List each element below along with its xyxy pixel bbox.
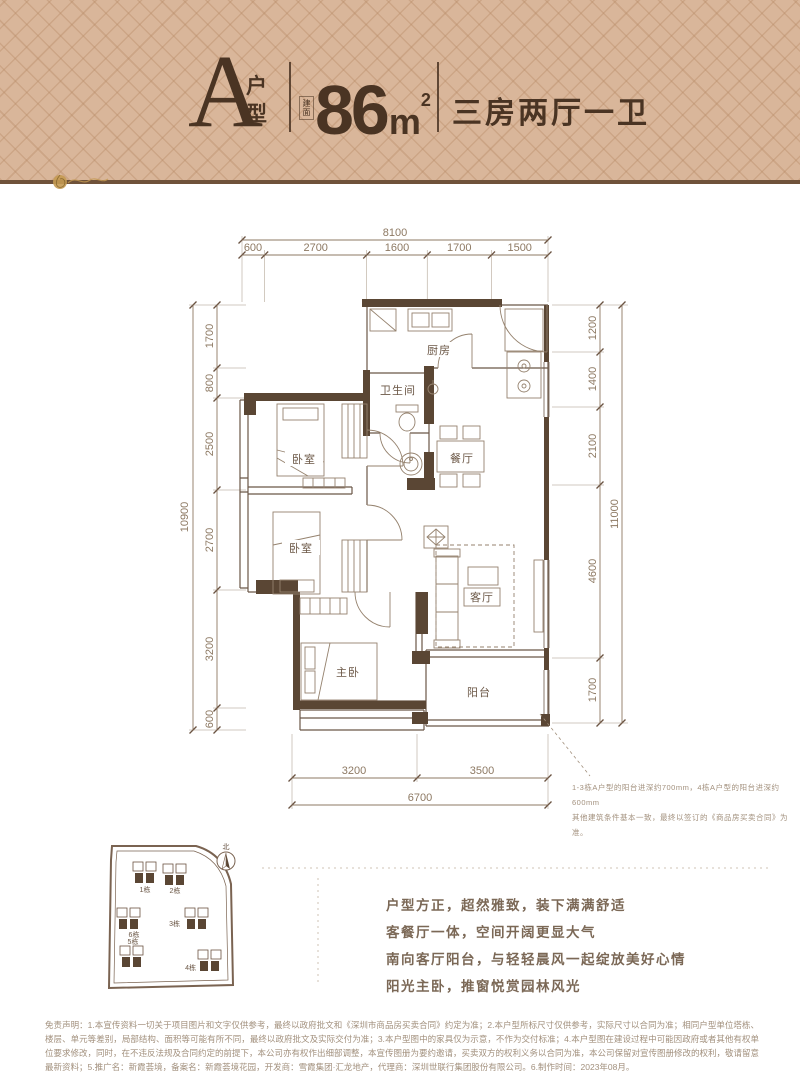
balcony-note-line2: 其他建筑条件基本一致，最终以签订的《商品房买卖合同》为准。 bbox=[572, 810, 800, 840]
dim-right-total: 11000 bbox=[609, 499, 621, 529]
area-value: 86 bbox=[315, 71, 387, 149]
layout-description: 三房两厅一卫 bbox=[452, 88, 650, 132]
north-label: 北 bbox=[223, 843, 230, 851]
furniture bbox=[273, 309, 543, 700]
note-leader-line bbox=[540, 714, 590, 776]
dim-left-seg: 2500 bbox=[204, 432, 216, 456]
north-compass: 北 bbox=[217, 843, 235, 870]
dim-left-seg: 800 bbox=[204, 374, 216, 392]
dim-top-seg: 2700 bbox=[303, 242, 327, 254]
dim-bottom-total: 6700 bbox=[408, 792, 432, 804]
dim-right-seg: 1400 bbox=[587, 367, 599, 391]
selling-point: 阳光主卧，推窗悦赏园林风光 bbox=[386, 973, 686, 1000]
room-bedroom2: 卧室 bbox=[289, 541, 313, 555]
dim-bottom-seg: 3200 bbox=[342, 765, 366, 777]
unit-type-word: 户型 bbox=[246, 72, 269, 128]
building-label: 6栋 bbox=[129, 930, 140, 939]
area-badge-seal: 建面 bbox=[299, 96, 314, 120]
disclaimer-text: 免责声明：1.本宣传资料一切关于项目图片和文字仅供参考，最终以政府批文和《深圳市… bbox=[45, 1018, 759, 1074]
dim-left-seg: 3200 bbox=[204, 637, 216, 661]
building-label: 1栋 bbox=[140, 885, 151, 894]
selling-point: 南向客厅阳台，与轻轻晨风一起绽放美好心情 bbox=[386, 946, 686, 973]
room-balcony: 阳台 bbox=[467, 685, 491, 699]
dim-left-total: 10900 bbox=[179, 502, 191, 533]
room-living: 客厅 bbox=[470, 590, 494, 604]
dim-top-total: 8100 bbox=[383, 227, 407, 239]
area-figure: 86m2 bbox=[315, 70, 431, 150]
dim-top-seg: 600 bbox=[244, 242, 262, 254]
room-labels: 厨房 卫生间 卧室 卧室 餐厅 客厅 主卧 阳台 bbox=[282, 342, 500, 699]
dim-right-seg: 4600 bbox=[587, 559, 599, 583]
dimension-lines bbox=[189, 236, 628, 809]
dim-left-seg: 1700 bbox=[204, 324, 216, 348]
site-plan: 北 1栋 2栋 3栋 6栋 5栋 4栋 bbox=[109, 843, 235, 988]
header-divider-1 bbox=[289, 62, 291, 132]
room-dining: 餐厅 bbox=[450, 451, 474, 465]
plan-walls bbox=[240, 299, 550, 730]
area-power: 2 bbox=[421, 90, 431, 110]
room-bedroom1: 卧室 bbox=[292, 452, 316, 466]
dim-top-seg: 1600 bbox=[385, 242, 409, 254]
dimension-labels: 8100 600 2700 1600 1700 1500 10900 1700 … bbox=[179, 227, 621, 804]
door-arcs bbox=[355, 305, 547, 627]
room-master: 主卧 bbox=[336, 666, 360, 679]
building-label: 2栋 bbox=[170, 886, 181, 895]
selling-points: 户型方正，超然雅致，装下满满舒适 客餐厅一体，空间开阔更显大气 南向客厅阳台，与… bbox=[386, 892, 686, 1000]
room-bath: 卫生间 bbox=[380, 383, 416, 397]
dim-left-seg: 600 bbox=[204, 710, 216, 728]
dim-right-seg: 1200 bbox=[587, 316, 599, 340]
dim-top-seg: 1700 bbox=[447, 242, 471, 254]
building-label: 5栋 bbox=[128, 937, 139, 946]
balcony-note: 1-3栋A户型的阳台进深约700mm，4栋A户型的阳台进深约600mm 其他建筑… bbox=[572, 780, 800, 840]
dim-right-seg: 1700 bbox=[587, 678, 599, 702]
building-label: 3栋 bbox=[169, 919, 180, 928]
selling-point: 户型方正，超然雅致，装下满满舒适 bbox=[386, 892, 686, 919]
header-divider-2 bbox=[437, 62, 439, 132]
balcony-note-line1: 1-3栋A户型的阳台进深约700mm，4栋A户型的阳台进深约600mm bbox=[572, 780, 800, 810]
selling-point: 客餐厅一体，空间开阔更显大气 bbox=[386, 919, 686, 946]
dim-left-seg: 2700 bbox=[204, 528, 216, 552]
dim-right-seg: 2100 bbox=[587, 434, 599, 458]
area-unit: m bbox=[389, 101, 421, 142]
dim-top-seg: 1500 bbox=[507, 242, 531, 254]
dim-bottom-seg: 3500 bbox=[470, 765, 494, 777]
room-kitchen: 厨房 bbox=[427, 344, 451, 357]
header-band: A 户型 建面 86m2 三房两厅一卫 bbox=[0, 0, 800, 184]
building-label: 4栋 bbox=[185, 963, 196, 972]
